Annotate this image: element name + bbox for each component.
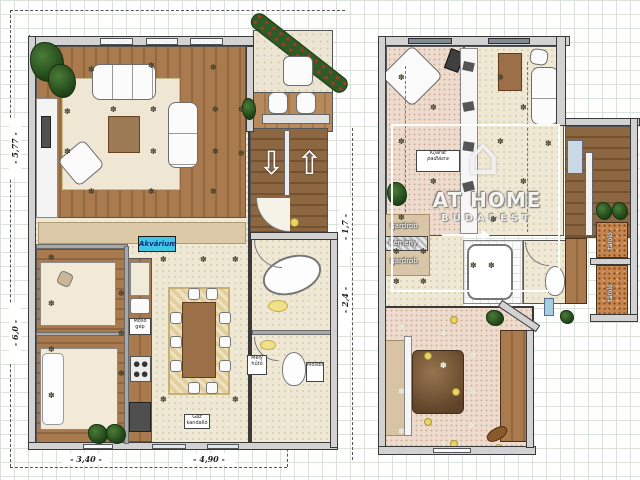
freezer-label: Mély hűtő (247, 355, 267, 375)
sofa (92, 64, 156, 100)
lamp-dot (424, 352, 432, 360)
flower-symbol: ✽ (470, 262, 477, 270)
flower-symbol: ✽ (148, 62, 155, 70)
uf-wall-left (378, 36, 386, 448)
flower-symbol: ✽ (398, 388, 405, 396)
dining-chair (170, 336, 182, 348)
flower-symbol: ✽ (470, 352, 477, 360)
flower-symbol: ✽ (210, 64, 217, 72)
kitchen-cabinet (130, 262, 150, 296)
window (408, 38, 452, 44)
window (83, 444, 113, 449)
flower-symbol: ✽ (440, 362, 447, 370)
dimension-line-middle (352, 128, 353, 460)
uf-bedroom-wall-right (526, 330, 534, 448)
door-knob (290, 218, 299, 227)
storage-upper-label: tároló (607, 223, 617, 259)
window (488, 38, 530, 44)
dim-label-60: - 6,0 - (9, 303, 21, 363)
stove (130, 356, 151, 382)
flower-symbol: ✽ (118, 370, 125, 378)
flower-symbol: ✽ (430, 178, 437, 186)
flower-symbol: ✽ (440, 330, 447, 338)
uf-wing-wall-top (565, 118, 640, 126)
flower-symbol: ✽ (232, 256, 239, 264)
plant (596, 202, 612, 220)
plant (48, 64, 76, 98)
flower-symbol: ✽ (48, 300, 55, 308)
watermark-arrowhead-icon (482, 230, 490, 240)
fireplace-label: Gáz kandalló (184, 414, 210, 429)
watermark-house-icon: ⌂ (448, 128, 518, 188)
stairs-up-arrow-icon: ⇧ (296, 144, 322, 190)
dining-chair (219, 312, 231, 324)
uf-wing-wall-bottom (590, 314, 638, 322)
dimension-line-bottom (10, 467, 287, 468)
flower-symbol: ✽ (440, 440, 447, 448)
plant (486, 310, 504, 326)
flower-symbol: ✽ (497, 74, 504, 82)
aquarium-label: Akvárium (138, 236, 176, 252)
terrace-deck (253, 92, 333, 132)
dining-chair (170, 312, 182, 324)
flower-symbol: ✽ (160, 256, 167, 264)
storage-box (529, 48, 549, 66)
gf-wall-bath-top (250, 232, 338, 240)
flower-symbol: ✽ (238, 106, 245, 114)
dining-chair (170, 360, 182, 372)
flower-symbol: ✽ (212, 148, 219, 156)
flower-symbol: ✽ (398, 428, 405, 436)
gf-inner-wall (36, 244, 128, 249)
flower-symbol: ✽ (393, 278, 400, 286)
flower-symbol: ✽ (212, 106, 219, 114)
dim-label-490: - 4,90 - (183, 453, 235, 465)
plant (88, 424, 108, 444)
flower-symbol: ✽ (420, 248, 427, 256)
sofa (531, 67, 559, 125)
terrace-chair (296, 92, 316, 114)
watermark-city: BUDAPEST (430, 213, 544, 227)
storage-closet-lower: tároló (596, 265, 628, 319)
window (433, 448, 471, 453)
dimension-line-left (10, 10, 11, 467)
flower-symbol: ✽ (398, 74, 405, 82)
dim-label-577: - 5,77 - (9, 118, 21, 178)
flower-symbol: ✽ (430, 104, 437, 112)
storage-closet-upper: tároló (596, 222, 628, 258)
dining-chair (188, 288, 200, 300)
basin-label: Mosdó (306, 362, 324, 382)
terrace-step (262, 114, 330, 124)
lamp-dot (424, 418, 432, 426)
flower-symbol: ✽ (210, 188, 217, 196)
bed (412, 350, 464, 414)
bed (40, 262, 116, 326)
flower-symbol: ✽ (88, 188, 95, 196)
sofa (168, 102, 198, 168)
dim-label-24: - 2,4 - (339, 270, 351, 330)
flower-symbol: ✽ (398, 324, 405, 332)
cabinet-blue (544, 298, 554, 316)
headboard (404, 336, 412, 436)
dim-label-17: - 1,7 - (339, 197, 351, 257)
watermark-arrow (442, 234, 482, 236)
tv-screen (41, 116, 51, 148)
flower-symbol: ✽ (48, 346, 55, 354)
flower-symbol: ✽ (398, 214, 405, 222)
uf-wall-right-top (556, 36, 566, 126)
flower-symbol: ✽ (520, 178, 527, 186)
window (146, 38, 178, 45)
flower-symbol: ✽ (118, 290, 125, 298)
window (190, 38, 223, 45)
flower-symbol: ✽ (110, 106, 117, 114)
gf-inner-wall (36, 332, 128, 336)
lamp-dot (452, 388, 460, 396)
stair-glass (567, 140, 583, 174)
dining-chair (219, 360, 231, 372)
flower-symbol: ✽ (232, 396, 239, 404)
coffee-table (108, 116, 140, 153)
dining-chair (188, 382, 200, 394)
floor-plan-sheet: ⇩ ⇧ Akv (0, 0, 640, 480)
terrace-table (283, 56, 313, 86)
table (498, 53, 522, 91)
gf-inner-wall (124, 246, 129, 444)
flower-symbol: ✽ (150, 148, 157, 156)
flower-symbol: ✽ (150, 106, 157, 114)
flower-symbol: ✽ (48, 392, 55, 400)
flower-symbol: ✽ (64, 108, 71, 116)
plant (106, 424, 126, 444)
flower-symbol: ✽ (238, 150, 245, 158)
flower-symbol: ✽ (490, 216, 497, 224)
shelf-item (462, 101, 474, 112)
plant (612, 202, 628, 220)
kitchen-sink (130, 298, 150, 314)
shaft-wall (565, 238, 587, 304)
storage-lower-label: tároló (607, 275, 617, 311)
flower-symbol: ✽ (64, 148, 71, 156)
window (152, 444, 186, 449)
washer-label: Mosó gép (129, 318, 151, 335)
bath-divider-wall (252, 330, 332, 335)
flower-symbol: ✽ (160, 396, 167, 404)
watermark-brand: AT HOME (424, 188, 550, 212)
flower-symbol: ✽ (118, 330, 125, 338)
toilet (282, 352, 306, 386)
flower-symbol: ✽ (470, 388, 477, 396)
terrace-chair (268, 92, 288, 114)
dining-table (182, 302, 216, 378)
flower-symbol: ✽ (497, 138, 504, 146)
window (100, 38, 133, 45)
flower-symbol: ✽ (520, 104, 527, 112)
dim-label-340: - 3,40 - (62, 453, 110, 465)
stair-handrail (284, 130, 290, 196)
bath-mat (268, 300, 288, 312)
flower-symbol: ✽ (545, 140, 552, 148)
stair-handrail (585, 152, 593, 236)
flower-symbol: ✽ (200, 256, 207, 264)
gf-wall-right-lower (330, 236, 338, 448)
window (207, 444, 239, 449)
uf-wall-top (378, 36, 570, 46)
lamp-dot (450, 316, 458, 324)
flower-symbol: ✽ (88, 66, 95, 74)
pillows (42, 353, 64, 425)
gf-wall-left (28, 36, 36, 450)
flower-symbol: ✽ (488, 262, 495, 270)
dining-chair (206, 382, 218, 394)
dimension-line-top (10, 10, 345, 11)
plant (560, 310, 574, 324)
flower-symbol: ✽ (393, 248, 400, 256)
oven-appliance (129, 402, 151, 432)
stairs-down-arrow-icon: ⇩ (258, 144, 284, 190)
uf-wing-wall-right (630, 118, 638, 320)
flower-symbol: ✽ (420, 278, 427, 286)
flower-symbol: ✽ (398, 138, 405, 146)
flower-symbol: ✽ (148, 188, 155, 196)
dining-chair (206, 288, 218, 300)
dining-chair (219, 336, 231, 348)
flower-symbol: ✽ (48, 254, 55, 262)
flower-symbol: ✽ (468, 422, 475, 430)
